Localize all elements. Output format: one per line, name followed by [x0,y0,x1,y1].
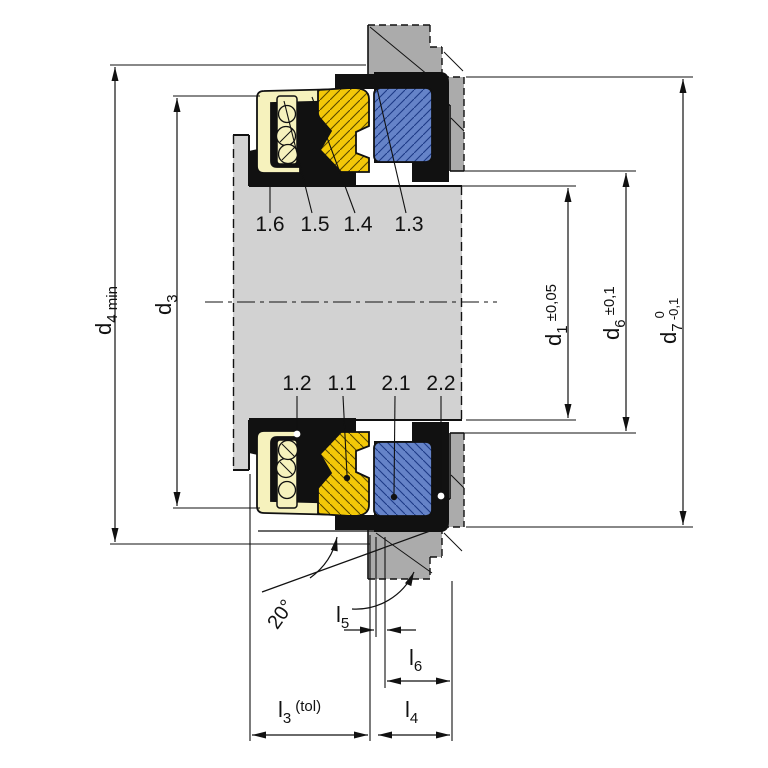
part-label-1-5: 1.5 [300,213,329,236]
boot-strip [335,74,374,89]
seat-ring [374,88,432,162]
seal-cross-section-svg: 20° 1.6 1.5 1.4 1.3 1.2 1.1 2.1 2.2 d4 m… [0,0,768,768]
dim-label-l3: l3(tol) [278,697,321,727]
dim-label-d4: d4 min [91,286,121,335]
part-label-1-1: 1.1 [327,372,356,395]
part-label-1-6: 1.6 [255,213,284,236]
leader-dot-2-1 [391,494,397,500]
part-label-1-4: 1.4 [343,213,373,236]
part-label-2-1: 2.1 [381,372,410,395]
leader-dot-2-2 [438,493,445,500]
angle-value-label: 20° [263,596,298,633]
dim-label-l5: l5 [336,602,349,632]
part-label-1-2: 1.2 [282,372,311,395]
dim-label-l6: l6 [409,645,422,675]
seal-assembly-upper [249,72,449,186]
dim-label-d1: d1±0,05 [541,284,571,346]
part-label-2-2: 2.2 [426,372,455,395]
leader-dot-1-2 [294,431,301,438]
dim-label-l4: l4 [405,697,418,727]
seal-assembly-lower [249,418,449,532]
part-label-1-3: 1.3 [394,213,423,236]
dim-label-d6: d6±0,1 [599,286,629,340]
dim-label-d7: d70-0,1 [652,298,686,344]
leader-dot-1-1 [344,475,350,481]
angle-pointer-curve [310,537,337,578]
seal-drawing-page: 20° 1.6 1.5 1.4 1.3 1.2 1.1 2.1 2.2 d4 m… [0,0,768,768]
